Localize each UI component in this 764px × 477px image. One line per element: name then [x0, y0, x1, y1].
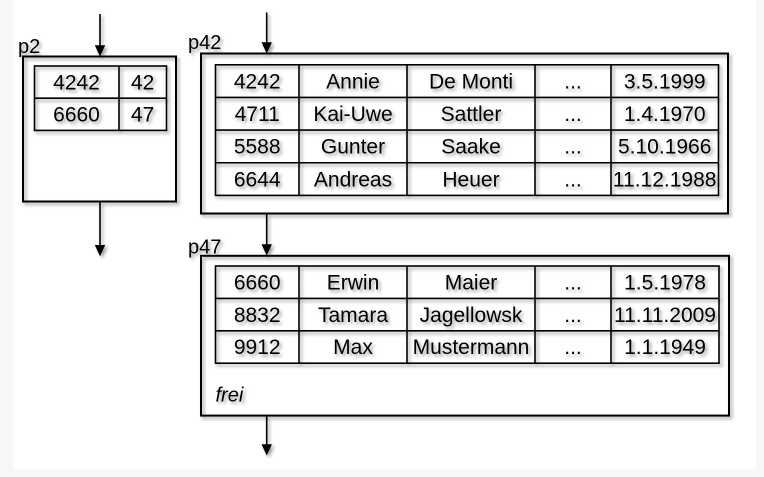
svg-text:De Monti: De Monti	[429, 70, 513, 93]
svg-text:5.10.1966: 5.10.1966	[618, 136, 711, 159]
svg-text:p2: p2	[18, 36, 40, 58]
svg-text:42: 42	[131, 71, 154, 94]
svg-text:Heuer: Heuer	[442, 168, 499, 191]
svg-text:4711: 4711	[235, 103, 280, 126]
svg-text:Kai-Uwe: Kai-Uwe	[313, 103, 392, 126]
svg-text:6660: 6660	[53, 104, 100, 127]
svg-text:Tamara: Tamara	[318, 304, 388, 327]
svg-text:...: ...	[564, 70, 582, 93]
svg-text:...: ...	[564, 168, 582, 191]
svg-text:Max: Max	[333, 336, 373, 359]
svg-text:...: ...	[564, 103, 582, 126]
svg-text:Andreas: Andreas	[314, 168, 392, 191]
svg-text:Saake: Saake	[441, 136, 501, 159]
svg-text:Sattler: Sattler	[441, 103, 502, 126]
svg-text:Mustermann: Mustermann	[413, 336, 530, 359]
svg-text:Maier: Maier	[445, 271, 498, 294]
svg-text:1.5.1978: 1.5.1978	[624, 271, 706, 294]
svg-text:Erwin: Erwin	[327, 271, 380, 294]
svg-text:Gunter: Gunter	[321, 136, 385, 159]
svg-text:6660: 6660	[234, 271, 281, 294]
svg-text:p42: p42	[188, 32, 221, 54]
svg-text:Annie: Annie	[326, 70, 380, 93]
svg-text:11.12.1988: 11.12.1988	[613, 168, 717, 191]
svg-text:3.5.1999: 3.5.1999	[624, 70, 706, 93]
svg-text:5588: 5588	[234, 136, 281, 159]
svg-text:6644: 6644	[234, 168, 281, 191]
svg-text:11.11.2009: 11.11.2009	[614, 304, 716, 327]
svg-text:4242: 4242	[53, 71, 100, 94]
svg-text:4242: 4242	[234, 70, 281, 93]
svg-text:frei: frei	[216, 385, 244, 407]
svg-text:8832: 8832	[234, 304, 281, 327]
svg-text:1.1.1949: 1.1.1949	[624, 336, 706, 359]
svg-text:...: ...	[564, 304, 582, 327]
svg-text:47: 47	[131, 104, 154, 127]
svg-text:...: ...	[564, 271, 582, 294]
svg-text:Jagellowsk: Jagellowsk	[420, 304, 523, 327]
svg-text:9912: 9912	[234, 336, 281, 359]
svg-text:...: ...	[564, 136, 582, 159]
svg-text:1.4.1970: 1.4.1970	[624, 103, 706, 126]
svg-text:...: ...	[564, 336, 582, 359]
